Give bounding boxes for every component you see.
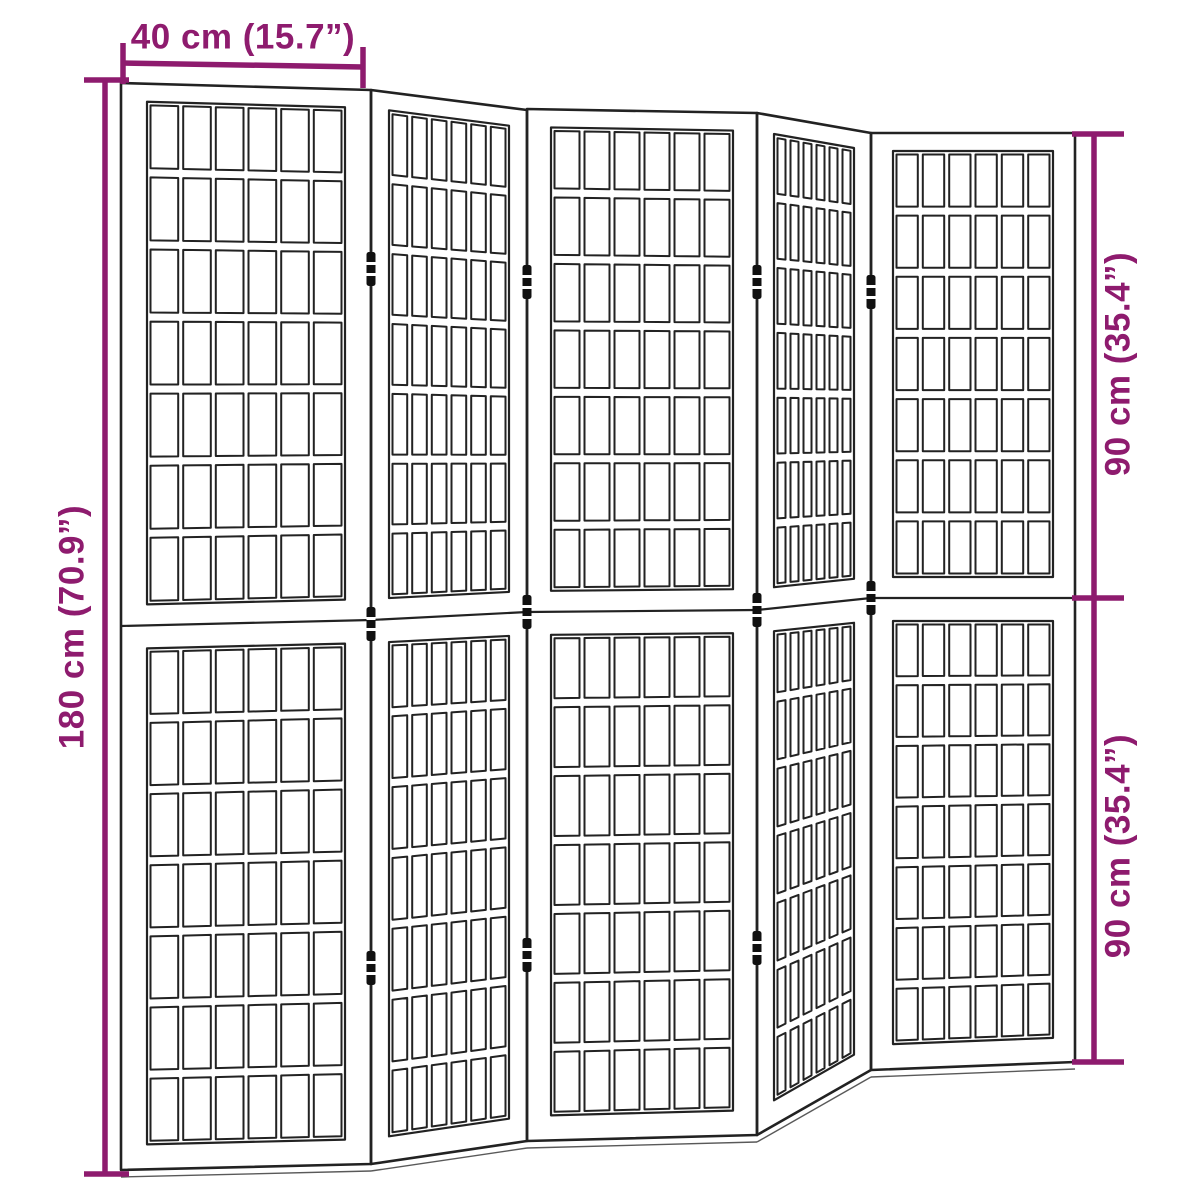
product-dimension-diagram: 40 cm (15.7”) 180 cm (70.9”) 90 cm (35.4… — [0, 0, 1200, 1200]
hinge-icon — [367, 607, 376, 641]
hinge-icon — [753, 265, 762, 299]
dimension-label-height: 180 cm (70.9”) — [53, 505, 92, 749]
hinge-icon — [867, 275, 876, 309]
dimension-lines — [84, 43, 1124, 1174]
hinge-icon — [523, 265, 532, 299]
hinge-icon — [367, 252, 376, 286]
dimension-label-panel-upper: 90 cm (35.4”) — [1099, 252, 1138, 476]
dimension-line-width — [123, 63, 363, 67]
hinge-icon — [523, 595, 532, 629]
hinge-icon — [753, 593, 762, 627]
hinge-icon — [753, 931, 762, 965]
room-divider-diagram: 40 cm (15.7”) 180 cm (70.9”) 90 cm (35.4… — [0, 0, 1200, 1200]
divider-panels — [121, 83, 1075, 1177]
hinge-icon — [367, 951, 376, 985]
hinge-icon — [867, 581, 876, 615]
dimension-label-panel-lower: 90 cm (35.4”) — [1099, 734, 1138, 958]
hinge-icon — [523, 938, 532, 972]
dimension-label-width: 40 cm (15.7”) — [131, 18, 355, 57]
